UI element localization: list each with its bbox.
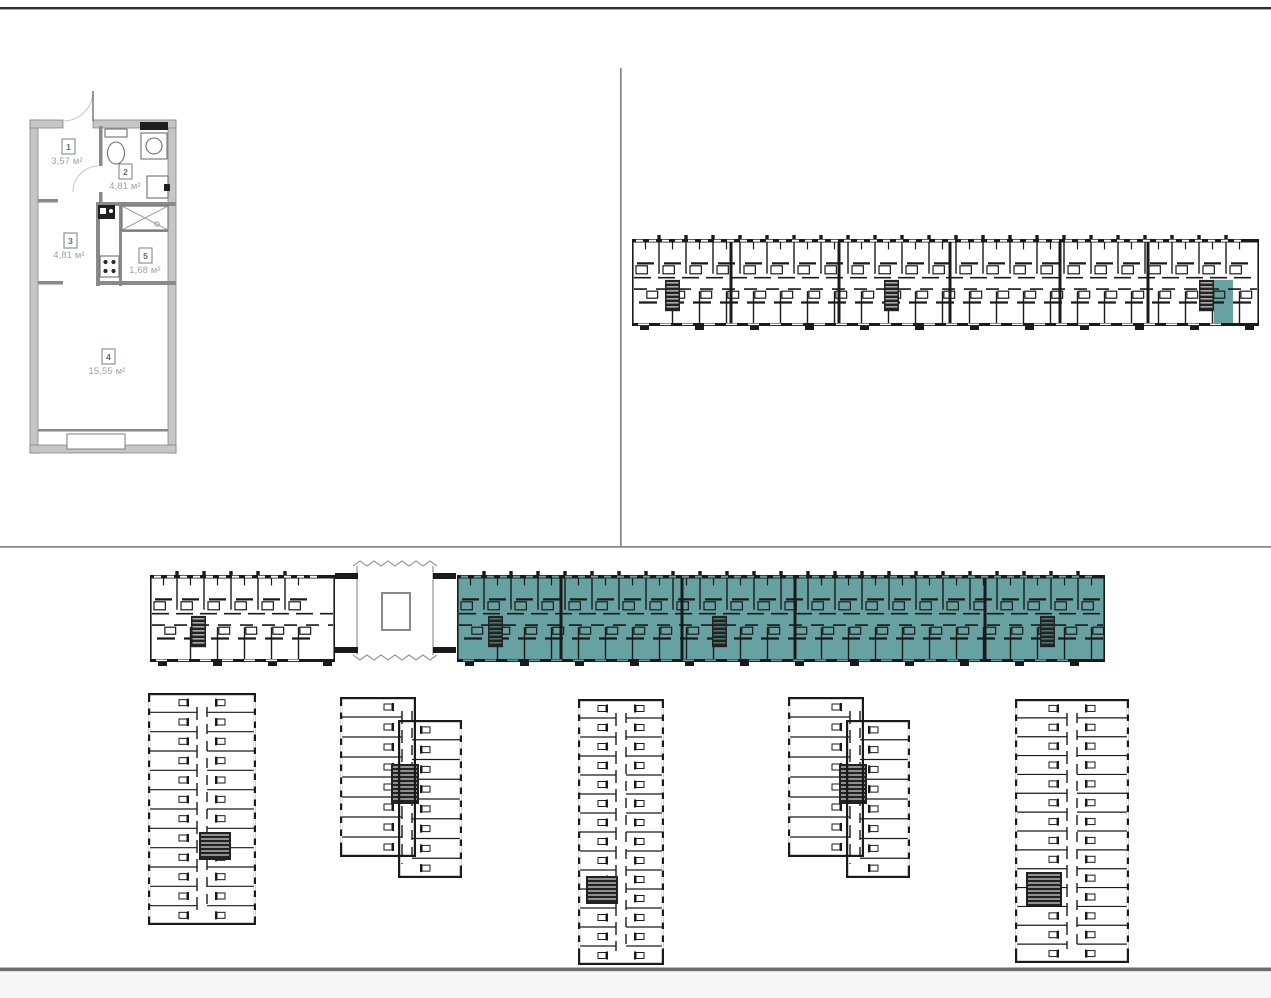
site-tower-3[interactable]	[578, 699, 664, 965]
plans-canvas: 1 3,57 м² 2 4,81 м² 3 4,81 м² 5 1,68 м² …	[0, 0, 1271, 998]
stair-core	[1026, 872, 1062, 906]
site-tower-5[interactable]	[1015, 699, 1129, 963]
stair-core	[586, 876, 618, 904]
shelf-block	[140, 122, 168, 130]
room-area: 15,55 м²	[89, 366, 126, 376]
horizontal-divider	[0, 546, 1271, 548]
floorplan-viewer-page: 1 3,57 м² 2 4,81 м² 3 4,81 м² 5 1,68 м² …	[0, 0, 1271, 998]
bottom-border-line	[0, 968, 1271, 972]
kitchen-fixtures	[98, 205, 119, 277]
site-building-left-section[interactable]	[150, 571, 335, 666]
vertical-divider	[620, 68, 622, 546]
apartment-floorplan: 1 3,57 м² 2 4,81 м² 3 4,81 м² 5 1,68 м² …	[30, 91, 176, 453]
room-number: 1	[66, 142, 71, 152]
footer-area	[0, 971, 1271, 998]
top-border-line	[0, 7, 1271, 9]
room-label-5: 5 1,68 м²	[129, 248, 161, 275]
room-area: 4,81 м²	[53, 250, 85, 260]
toilet-bowl	[108, 142, 125, 164]
room-number: 4	[106, 352, 111, 362]
washing-machine-drum	[146, 138, 162, 154]
room-number: 2	[123, 167, 128, 177]
toilet-tank	[105, 129, 127, 137]
site-building-highlighted-section[interactable]	[457, 571, 1105, 666]
room-area: 1,68 м²	[129, 265, 161, 275]
room-number: 3	[68, 236, 73, 246]
site-tower-2[interactable]	[340, 697, 462, 878]
stove	[100, 256, 119, 277]
shower-area	[122, 206, 168, 230]
room-number: 5	[143, 251, 148, 261]
building-floor-strip[interactable]	[632, 235, 1259, 330]
entry-door	[63, 91, 93, 121]
apartment-outer-walls	[30, 120, 176, 453]
generated-plans	[148, 235, 1259, 965]
room-label-1: 1 3,57 м²	[51, 139, 83, 166]
site-tower-1[interactable]	[148, 693, 256, 925]
stair-core	[199, 832, 231, 860]
room-label-2: 2 4,81 м²	[109, 164, 141, 191]
room-label-4: 4 15,55 м²	[89, 349, 126, 376]
sink-tap	[164, 184, 170, 191]
room-area: 4,81 м²	[109, 181, 141, 191]
site-tower-4[interactable]	[788, 697, 910, 878]
room-label-3: 3 4,81 м²	[53, 233, 85, 260]
site-connector	[335, 561, 456, 660]
room-area: 3,57 м²	[51, 156, 83, 166]
